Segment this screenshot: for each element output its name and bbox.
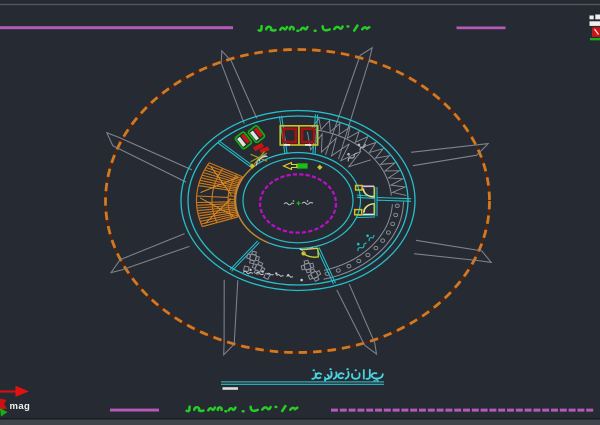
svg-text:mag: mag xyxy=(10,401,31,412)
